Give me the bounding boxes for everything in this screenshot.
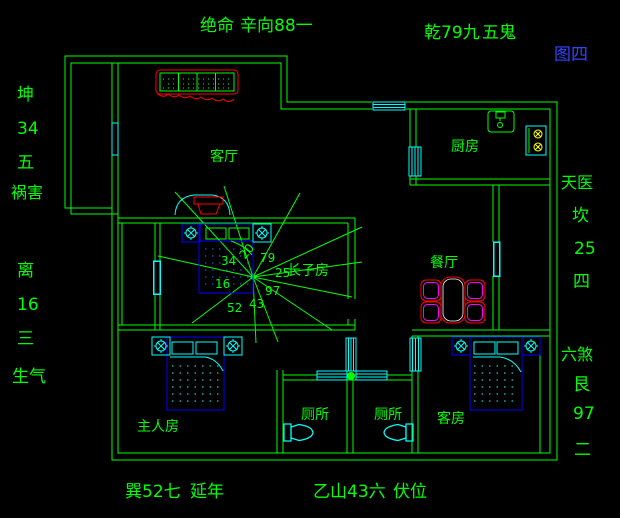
kitchen-sink (488, 111, 514, 132)
label-tianyi: 天医 (561, 173, 593, 192)
room-label-dining: 餐厅 (430, 255, 458, 271)
label-yannian: 延年 (190, 482, 224, 502)
master-bed (167, 337, 224, 410)
star-s: 43 (249, 297, 264, 311)
room-label-living: 客厅 (210, 148, 238, 165)
room-label-toilet-a: 厕所 (301, 407, 329, 423)
eldest-son-window (154, 261, 161, 294)
label-wugui: 五鬼 (482, 23, 516, 43)
guest-nightstands (452, 337, 540, 355)
label-97: 97 (573, 404, 595, 424)
toilet-fixture-right (384, 424, 413, 441)
label-xinxiang-88: 辛向88一 (240, 16, 313, 36)
star-se: 97 (265, 284, 280, 298)
label-gen: 艮 (573, 375, 590, 395)
room-label-toilet-b: 厕所 (374, 407, 402, 423)
outer-walls (65, 56, 557, 460)
master-nightstands (152, 337, 242, 355)
label-jueming: 绝命 (200, 16, 234, 36)
label-san: 三 (17, 329, 34, 349)
hall-door-left (346, 338, 356, 371)
guest-bed (470, 337, 522, 410)
label-wu: 五 (17, 153, 34, 173)
label-liusha: 六煞 (561, 345, 593, 364)
label-qian-79: 乾79九 (424, 23, 480, 43)
kitchen-door (409, 147, 421, 176)
label-fuwei: 伏位 (393, 482, 427, 502)
star-ne: 79 (260, 251, 275, 265)
figure-tag: 图四 (554, 45, 588, 65)
label-kan: 坎 (572, 206, 589, 226)
toilet-left-window (317, 371, 347, 380)
label-si: 四 (573, 272, 590, 292)
label-li: 离 (17, 261, 34, 281)
dining-window (494, 242, 500, 276)
interior-walls (112, 63, 550, 453)
tv-cabinet (175, 195, 230, 215)
sofa (156, 70, 238, 102)
label-xun-52: 巽52七 (125, 482, 181, 502)
label-16: 16 (17, 295, 39, 315)
entry-point-dot (347, 372, 355, 380)
star-sw: 52 (227, 301, 242, 315)
star-nw: 34 (221, 254, 236, 268)
label-yishan-43: 乙山43六 (313, 482, 386, 502)
hall-bar-window (112, 123, 118, 155)
label-34: 34 (17, 119, 39, 139)
toilet-right-window (356, 371, 387, 380)
label-kun: 坤 (17, 85, 34, 105)
room-label-guest: 客房 (437, 410, 465, 427)
room-label-kitchen: 厨房 (451, 139, 479, 155)
star-e: 25 (275, 266, 290, 280)
room-label-eldest-son: 长子房 (287, 263, 329, 279)
stove (526, 126, 546, 155)
toilet-fixture-left (284, 424, 313, 441)
cad-canvas[interactable]: 绝命 辛向88一 乾79九 五鬼 图四 坤 34 五 祸害 离 16 三 生气 … (0, 0, 620, 518)
star-w: 16 (215, 277, 230, 291)
floorplan-drawing: 绝命 辛向88一 乾79九 五鬼 图四 坤 34 五 祸害 离 16 三 生气 … (0, 0, 620, 518)
label-er: 二 (574, 440, 591, 460)
label-25: 25 (574, 239, 596, 259)
label-shengqi: 生气 (12, 367, 46, 387)
hall-door-right (410, 338, 421, 371)
room-label-master: 主人房 (137, 419, 179, 435)
dining-set (421, 277, 485, 323)
label-huohai: 祸害 (11, 183, 43, 202)
star-n: 20 (236, 241, 257, 262)
